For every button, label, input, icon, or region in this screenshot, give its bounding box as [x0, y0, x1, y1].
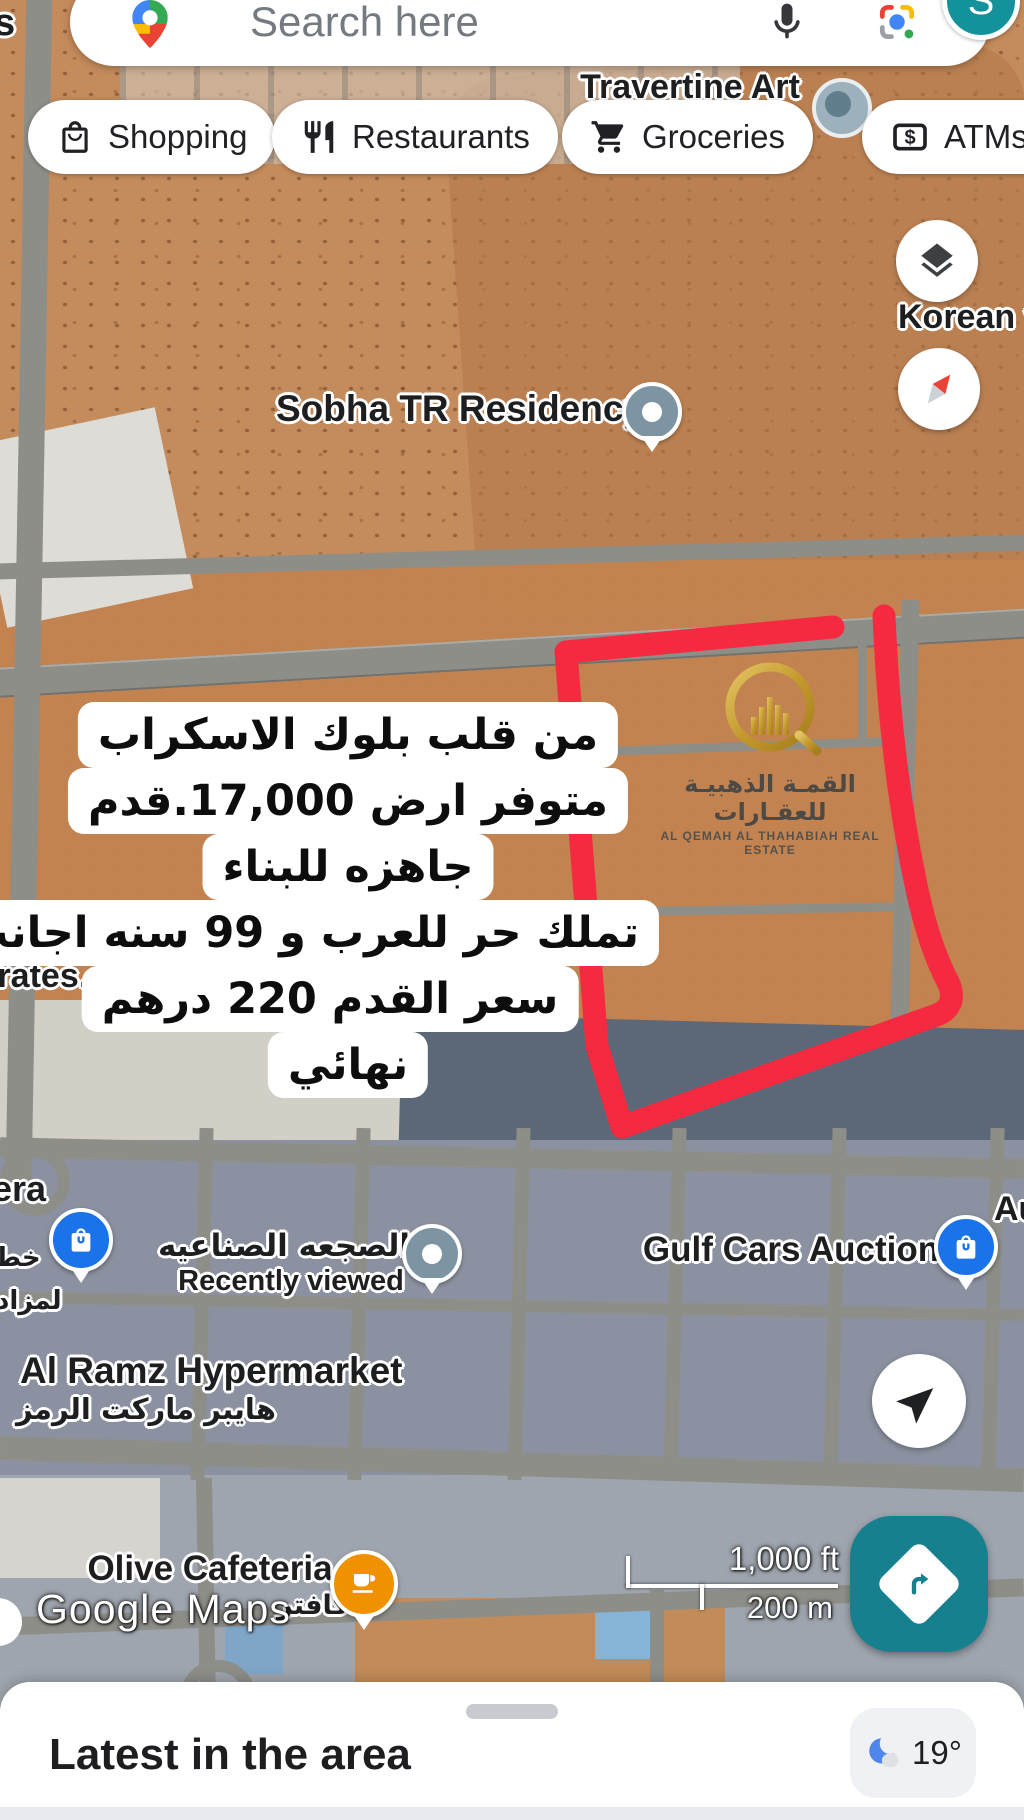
- realty-logo-arabic: القمـة الذهبيـة للعقـارات: [655, 770, 885, 826]
- ad-line-2: متوفر ارض 17,000.قدم: [68, 768, 628, 834]
- pin-tail: [71, 1268, 91, 1283]
- google-maps-pin-icon: [132, 0, 168, 48]
- map-scale-bar: 1,000 ft 200 m: [618, 1540, 843, 1620]
- chip-groceries[interactable]: Groceries: [562, 100, 813, 174]
- ad-line-3: جاهزه للبناء: [203, 834, 494, 900]
- search-input[interactable]: Search here: [250, 0, 479, 46]
- map-label-fragment: خط: [0, 1243, 41, 1273]
- poi-pin-recently-viewed[interactable]: [402, 1224, 462, 1284]
- layers-icon: [916, 240, 958, 282]
- sheet-next-card-edge: [0, 1807, 1024, 1820]
- chip-label: Groceries: [642, 118, 785, 156]
- compass-button[interactable]: [898, 348, 980, 430]
- pin-tail: [641, 436, 663, 452]
- map-label-al-ramz-arabic: هايبر ماركت الرمز: [16, 1392, 276, 1426]
- drag-handle[interactable]: [466, 1704, 558, 1719]
- microphone-icon[interactable]: [765, 0, 809, 44]
- directions-fab[interactable]: [850, 1516, 988, 1652]
- chip-restaurants[interactable]: Restaurants: [272, 100, 558, 174]
- poi-pin-sobha[interactable]: [622, 382, 682, 442]
- atm-icon: $: [890, 117, 930, 157]
- google-maps-watermark: Google Maps: [36, 1586, 291, 1633]
- map-label-sobha[interactable]: Sobha TR Residency: [276, 388, 644, 430]
- shopping-bag-icon: [67, 1226, 95, 1254]
- realty-logo-icon: [655, 655, 885, 765]
- saved-pin-gulf-cars[interactable]: [934, 1215, 998, 1279]
- poi-pin-olive[interactable]: [330, 1550, 398, 1618]
- navigate-button[interactable]: [872, 1354, 966, 1448]
- svg-text:$: $: [904, 127, 915, 149]
- pin-tail: [956, 1275, 976, 1290]
- groceries-cart-icon: [590, 118, 628, 156]
- ad-line-5: سعر القدم 220 درهم: [82, 966, 579, 1032]
- pin-tail: [353, 1614, 375, 1630]
- map-label-korean[interactable]: Korean v: [898, 298, 1024, 337]
- realty-logo-english: AL QEMAH AL THAHABIAH REAL ESTATE: [655, 829, 885, 857]
- chip-label: ATMs: [944, 118, 1024, 156]
- scale-line: [626, 1584, 838, 1588]
- ad-line-1: من قلب بلوك الاسكراب: [78, 702, 618, 768]
- shopping-bag-icon: [56, 118, 94, 156]
- ad-line-4: تملك حر للعرب و 99 سنه اجانب: [0, 900, 659, 966]
- coffee-cup-icon: [349, 1569, 379, 1599]
- directions-icon: [875, 1540, 963, 1628]
- map-label-fragment: لمزاد: [0, 1286, 62, 1316]
- ad-line-6: نهائي: [268, 1032, 428, 1098]
- google-lens-icon[interactable]: [875, 0, 919, 44]
- google-maps-app: القمـة الذهبيـة للعقـارات AL QEMAH AL TH…: [0, 0, 1024, 1820]
- map-label-gulf-cars[interactable]: Gulf Cars Auction: [643, 1230, 939, 1270]
- bottom-sheet[interactable]: Latest in the area 19°: [0, 1682, 1024, 1820]
- saved-pin-left[interactable]: [49, 1208, 113, 1272]
- temperature-label: 19°: [912, 1734, 962, 1772]
- scale-tick: [700, 1584, 704, 1610]
- shopping-bag-icon: [952, 1233, 980, 1261]
- restaurants-icon: [300, 118, 338, 156]
- pin-tail: [421, 1278, 443, 1294]
- chip-atms[interactable]: $ ATMs: [862, 100, 1024, 174]
- scale-meters-label: 200 m: [747, 1590, 833, 1626]
- navigation-arrow-icon: [887, 1369, 952, 1434]
- realty-logo: القمـة الذهبيـة للعقـارات AL QEMAH AL TH…: [655, 655, 885, 815]
- map-label-fragment: s: [0, 2, 15, 45]
- search-bar[interactable]: Search here S: [70, 0, 990, 66]
- layers-button[interactable]: [896, 220, 978, 302]
- moon-cloud-icon: [864, 1732, 906, 1774]
- chip-label: Shopping: [108, 118, 247, 156]
- weather-chip[interactable]: 19°: [850, 1708, 976, 1798]
- scale-feet-label: 1,000 ft: [729, 1540, 839, 1578]
- map-label-olive-cafeteria[interactable]: Olive Cafeteria: [87, 1549, 332, 1589]
- map-label-sajaa[interactable]: الصجعه الصناعيه: [158, 1228, 410, 1264]
- map-label-fragment: Au: [994, 1190, 1024, 1229]
- chip-label: Restaurants: [352, 118, 530, 156]
- sheet-title: Latest in the area: [49, 1730, 411, 1780]
- scale-tick: [626, 1556, 630, 1588]
- search-placeholder: Search here: [250, 0, 479, 45]
- map-label-fragment: era: [0, 1168, 46, 1210]
- map-label-recently-viewed[interactable]: Recently viewed: [178, 1265, 404, 1298]
- avatar-letter: S: [968, 0, 995, 24]
- map-label-al-ramz[interactable]: Al Ramz Hypermarket: [20, 1350, 402, 1392]
- chip-shopping[interactable]: Shopping: [28, 100, 275, 174]
- compass-icon: [907, 357, 972, 422]
